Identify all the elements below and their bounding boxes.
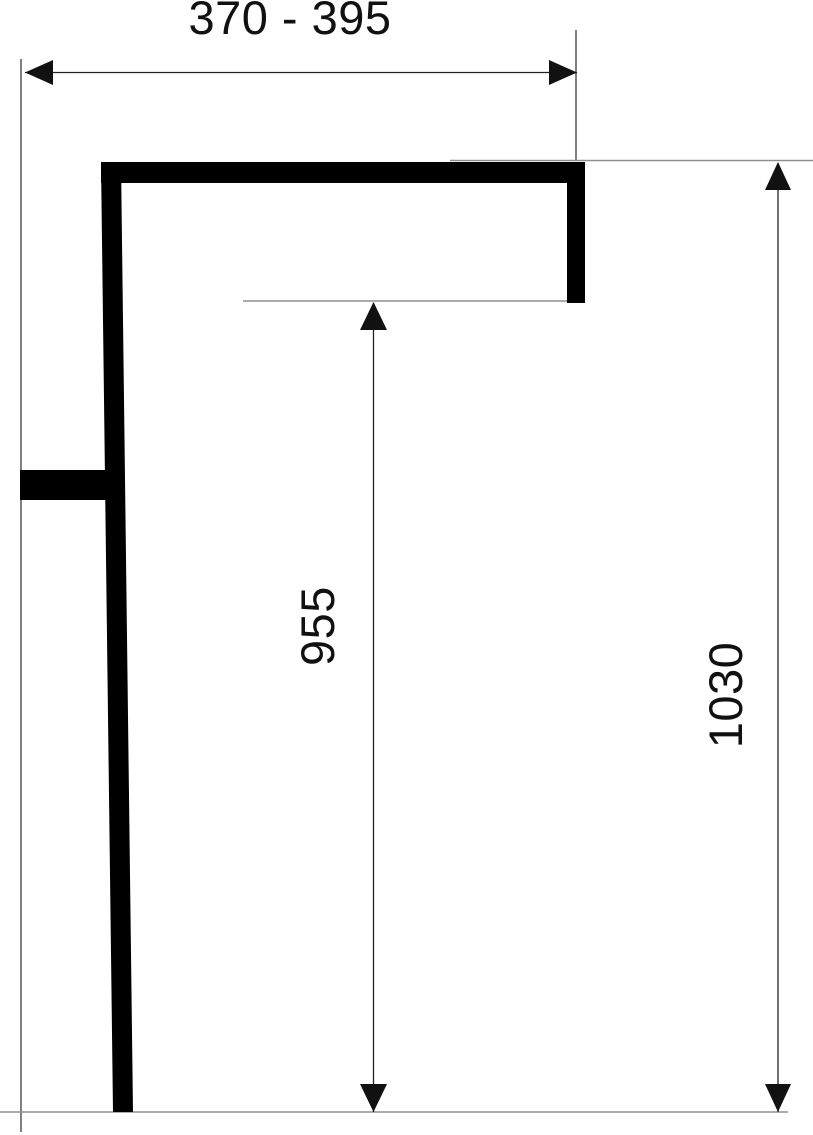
profile-left-protrusion — [20, 470, 112, 500]
dimension-overall-height-label: 1030 — [699, 642, 752, 749]
profile-left-leg — [101, 162, 133, 1112]
arrowhead-down-icon — [765, 1084, 791, 1112]
dimension-overall-height: 1030 — [699, 162, 791, 1112]
dimension-inner-height: 955 — [291, 302, 387, 1112]
drawing-canvas: 370 - 395 955 1030 — [0, 0, 813, 1135]
profile-right-hook — [567, 162, 585, 303]
dimension-inner-height-label: 955 — [291, 586, 344, 666]
arrowhead-up-icon — [360, 302, 387, 330]
dimension-width-label: 370 - 395 — [188, 0, 391, 44]
arrowhead-left-icon — [25, 60, 53, 85]
arrowhead-down-icon — [360, 1084, 387, 1112]
dimension-width: 370 - 395 — [25, 0, 577, 85]
arrowhead-up-icon — [765, 162, 791, 190]
profile-top-bar — [101, 162, 585, 183]
dimension-drawing: 370 - 395 955 1030 — [0, 0, 813, 1135]
arrowhead-right-icon — [549, 60, 577, 85]
